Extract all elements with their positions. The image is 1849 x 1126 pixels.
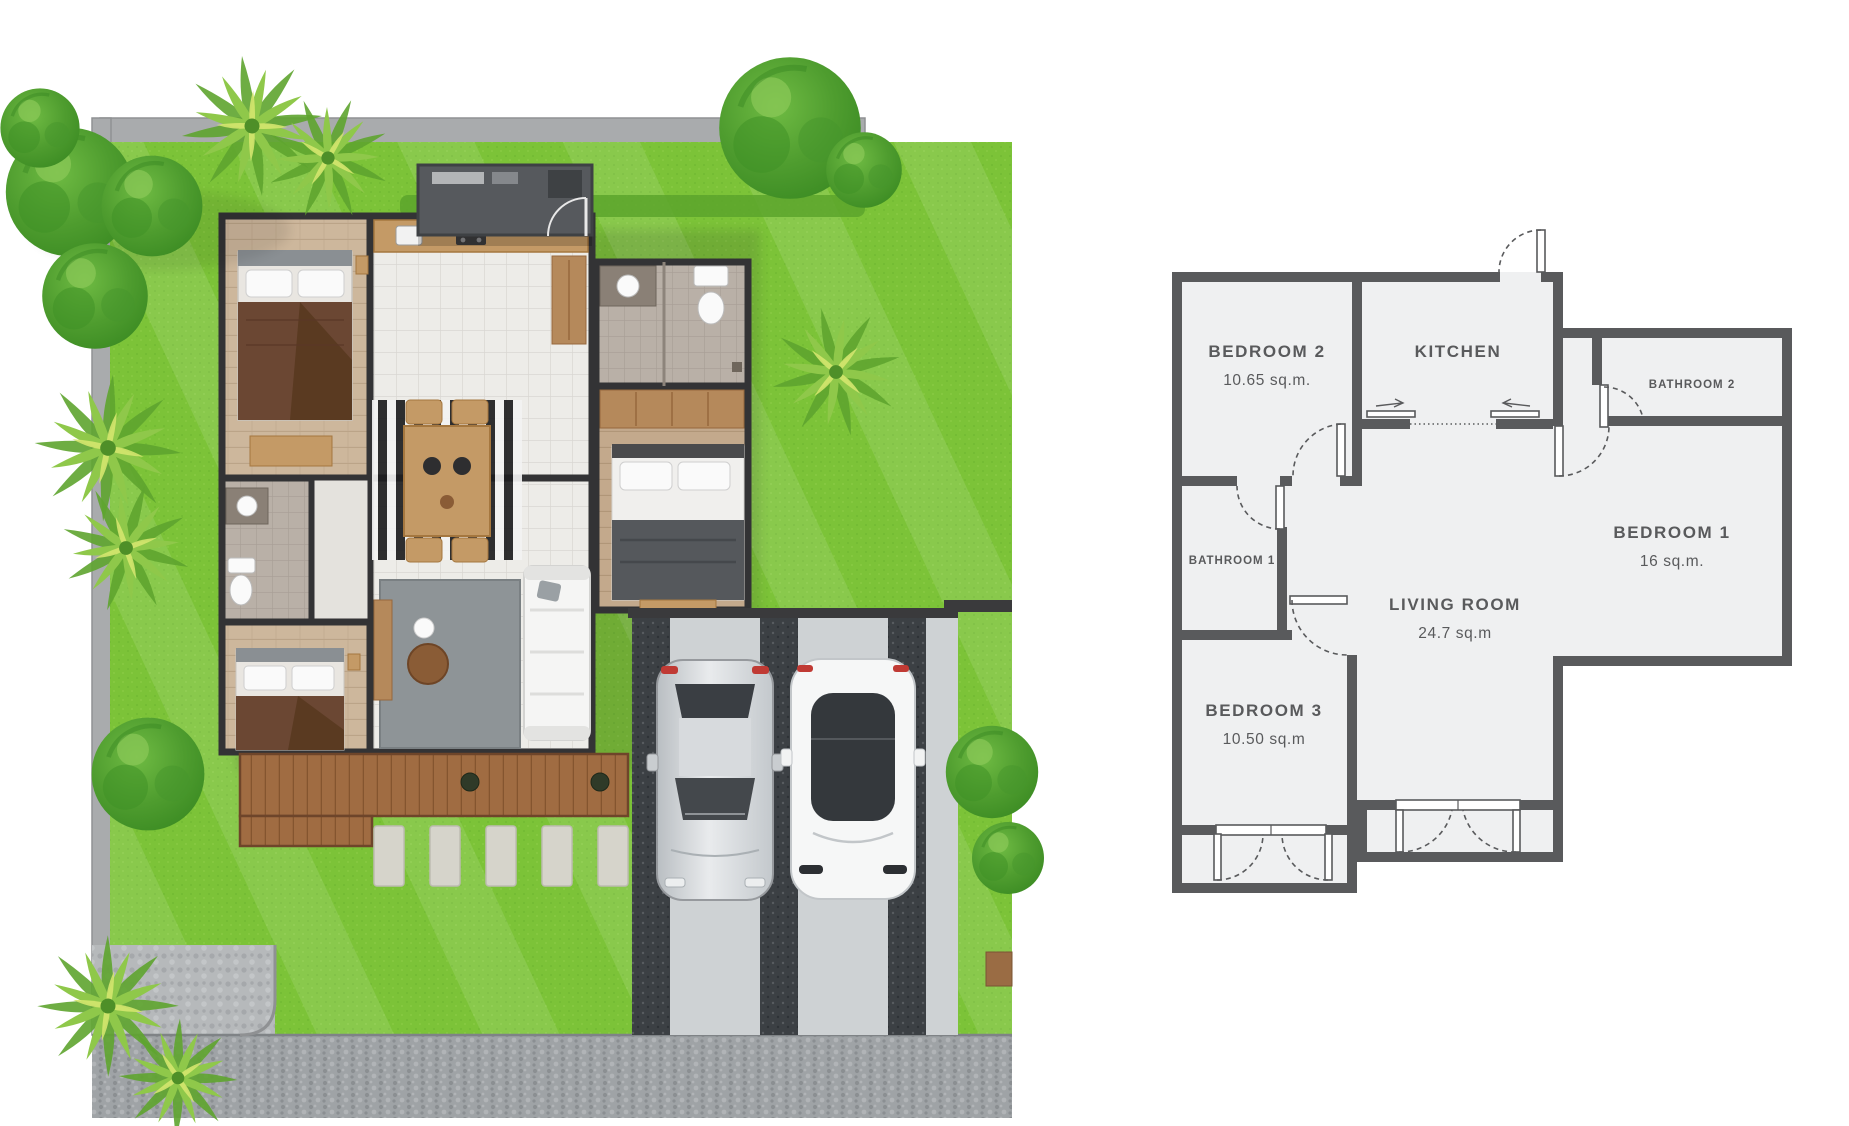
bedroom2-door-leaf (1337, 424, 1345, 476)
master-bed-icon (600, 390, 744, 610)
front-fence (944, 600, 1012, 612)
site-plan-illustration (0, 56, 1044, 1126)
dresser-icon (250, 436, 332, 466)
room-area-bedroom3: 10.50 sq.m (1223, 731, 1306, 748)
room-area-bedroom1: 16 sq.m. (1640, 553, 1704, 570)
room-label-bathroom2: BATHROOM 2 (1649, 379, 1735, 391)
bed-icon (236, 648, 360, 750)
room-label-bedroom1: BEDROOM 1 (1613, 523, 1730, 542)
page: BEDROOM 2 10.65 sq.m. KITCHEN BATHROOM 2… (0, 0, 1849, 1126)
room-area-living: 24.7 sq.m (1418, 625, 1491, 642)
room-label-bathroom1: BATHROOM 1 (1189, 555, 1275, 567)
french-door-leaf (1513, 810, 1520, 852)
planter-pot-icon (461, 773, 479, 791)
dining-table-icon (372, 400, 522, 562)
carport-beam (628, 608, 958, 618)
sliding-door-leaf (1367, 411, 1415, 417)
room-label-bedroom3: BEDROOM 3 (1205, 701, 1322, 720)
room-label-living: LIVING ROOM (1389, 595, 1521, 614)
room-label-bedroom2: BEDROOM 2 (1208, 342, 1325, 361)
room-area-bedroom2: 10.65 sq.m. (1223, 372, 1311, 389)
bedroom3-door-leaf (1290, 596, 1347, 604)
room-label-kitchen: KITCHEN (1415, 342, 1502, 361)
bathroom1-door-leaf (1276, 486, 1284, 529)
sofa-icon (374, 566, 590, 748)
bedroom1-door-leaf (1555, 426, 1563, 476)
white-car (781, 659, 925, 899)
boundary-road (92, 1035, 1012, 1118)
french-door-leaf (1325, 834, 1332, 880)
render-hall (312, 478, 370, 622)
wood-deck-step (240, 816, 372, 846)
kitchen-entry-door-leaf (1537, 230, 1545, 272)
french-door-leaf (1396, 810, 1403, 852)
schematic-floor-plan: BEDROOM 2 10.65 sq.m. KITCHEN BATHROOM 2… (1172, 230, 1792, 893)
floor-plan-image: BEDROOM 2 10.65 sq.m. KITCHEN BATHROOM 2… (0, 0, 1849, 1126)
entrance-canopy (418, 165, 592, 246)
french-door-leaf (1214, 834, 1221, 880)
planter-pot-icon (591, 773, 609, 791)
bathroom2-door-leaf (1600, 385, 1608, 427)
planter-box (986, 952, 1012, 986)
wood-deck (240, 754, 628, 816)
bed-icon (238, 250, 352, 420)
sliding-door-leaf (1491, 411, 1539, 417)
silver-car (647, 660, 783, 900)
